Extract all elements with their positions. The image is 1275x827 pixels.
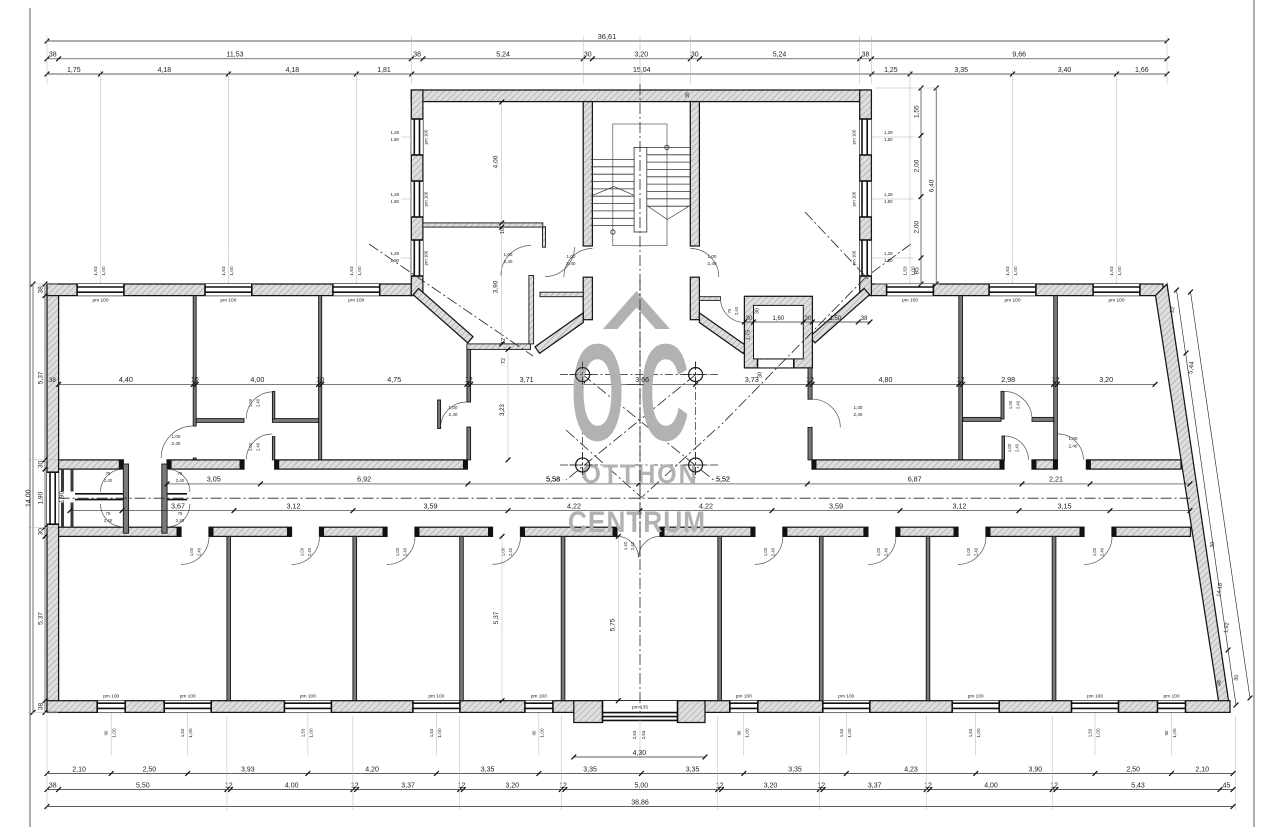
svg-text:1,00: 1,00 (248, 398, 253, 407)
svg-text:3,37: 3,37 (401, 782, 415, 789)
svg-text:3,20: 3,20 (1099, 375, 1113, 384)
svg-text:1,00: 1,00 (501, 547, 506, 556)
svg-text:38: 38 (413, 52, 421, 59)
svg-text:1,00: 1,00 (229, 266, 234, 276)
svg-text:2,53: 2,53 (632, 730, 637, 739)
svg-text:pm 100: pm 100 (348, 298, 364, 304)
svg-text:1,00: 1,00 (854, 405, 863, 410)
svg-text:1,00: 1,00 (395, 547, 400, 556)
svg-text:10: 10 (191, 375, 199, 384)
svg-text:1,80: 1,80 (884, 199, 893, 204)
svg-text:pm 100: pm 100 (93, 298, 109, 304)
svg-text:1,00: 1,00 (357, 266, 362, 276)
svg-text:2,00: 2,00 (914, 159, 921, 172)
svg-text:1,55: 1,55 (914, 105, 921, 118)
svg-text:1,00: 1,00 (1008, 400, 1013, 409)
svg-text:1,28: 1,28 (884, 192, 893, 197)
svg-text:3,71: 3,71 (520, 375, 534, 384)
svg-text:4,00: 4,00 (493, 155, 500, 168)
svg-text:2,40: 2,40 (1015, 443, 1020, 452)
svg-text:1,53: 1,53 (349, 266, 354, 276)
svg-text:1,66: 1,66 (1135, 67, 1149, 74)
svg-text:1,90: 1,90 (38, 491, 45, 504)
svg-text:22: 22 (1170, 306, 1177, 313)
svg-text:2,50: 2,50 (1126, 766, 1140, 773)
svg-text:5,37: 5,37 (38, 371, 45, 384)
svg-text:30: 30 (804, 316, 811, 322)
svg-text:2,40: 2,40 (883, 547, 888, 556)
svg-text:5,75: 5,75 (609, 618, 616, 631)
svg-text:4,40: 4,40 (119, 375, 133, 384)
svg-text:3,35: 3,35 (481, 766, 495, 773)
svg-text:2,40: 2,40 (104, 478, 113, 483)
svg-text:72: 72 (501, 358, 507, 364)
svg-text:75: 75 (106, 511, 111, 516)
svg-text:4,00: 4,00 (984, 782, 998, 789)
svg-text:3,59: 3,59 (829, 501, 843, 510)
svg-text:pm 100: pm 100 (1005, 298, 1021, 304)
svg-text:38: 38 (49, 52, 57, 59)
svg-text:38: 38 (49, 782, 57, 789)
svg-text:1,00: 1,00 (847, 728, 852, 738)
svg-text:2,40: 2,40 (770, 547, 775, 556)
svg-text:3,12: 3,12 (287, 501, 301, 510)
svg-text:1,50: 1,50 (829, 316, 841, 322)
svg-text:1,53: 1,53 (968, 728, 973, 737)
svg-text:1,00: 1,00 (172, 434, 181, 439)
svg-text:pm 100: pm 100 (424, 191, 429, 206)
svg-text:4,18: 4,18 (158, 67, 172, 74)
svg-text:3,35: 3,35 (788, 766, 802, 773)
svg-text:1,00: 1,00 (567, 254, 576, 259)
svg-text:3,37: 3,37 (868, 782, 882, 789)
svg-text:pm 100: pm 100 (220, 298, 236, 304)
svg-text:1,28: 1,28 (884, 130, 893, 135)
svg-text:4,18: 4,18 (286, 67, 300, 74)
svg-text:1,53: 1,53 (180, 728, 185, 737)
svg-text:pm 100: pm 100 (838, 694, 854, 700)
svg-text:1,60: 1,60 (773, 316, 785, 322)
svg-text:12: 12 (957, 375, 965, 384)
svg-text:4,80: 4,80 (879, 375, 893, 384)
svg-text:38: 38 (38, 286, 45, 294)
svg-text:3,20: 3,20 (634, 52, 648, 59)
svg-text:1,00: 1,00 (744, 728, 749, 738)
svg-text:12: 12 (225, 782, 233, 789)
svg-text:3,20: 3,20 (505, 782, 519, 789)
svg-text:2,40: 2,40 (449, 412, 458, 417)
svg-text:30: 30 (1234, 674, 1241, 681)
svg-text:75: 75 (727, 308, 732, 313)
svg-text:1,00: 1,00 (101, 266, 106, 276)
svg-text:12: 12 (351, 782, 359, 789)
svg-text:38: 38 (685, 92, 691, 98)
svg-text:1,28: 1,28 (390, 192, 399, 197)
svg-text:1,90: 1,90 (60, 491, 66, 503)
svg-text:12: 12 (559, 782, 567, 789)
svg-text:3,66: 3,66 (635, 375, 649, 384)
svg-text:12: 12 (924, 782, 932, 789)
svg-text:1,28: 1,28 (884, 251, 893, 256)
svg-text:5,24: 5,24 (773, 52, 787, 59)
svg-text:1,28: 1,28 (390, 130, 399, 135)
svg-text:pm 100: pm 100 (902, 298, 918, 304)
svg-text:4,23: 4,23 (904, 766, 918, 773)
svg-text:3,20: 3,20 (764, 782, 778, 789)
svg-text:4,75: 4,75 (387, 375, 401, 384)
svg-text:2,40: 2,40 (172, 441, 181, 446)
svg-text:75: 75 (178, 471, 183, 476)
svg-text:5,58: 5,58 (546, 475, 560, 484)
svg-text:2,40: 2,40 (176, 518, 185, 523)
svg-text:1,81: 1,81 (377, 67, 391, 74)
svg-text:2,42: 2,42 (630, 541, 635, 550)
svg-text:1,00: 1,00 (504, 252, 513, 257)
svg-text:12: 12 (806, 375, 814, 384)
svg-text:30: 30 (584, 52, 592, 59)
svg-text:1,28: 1,28 (390, 251, 399, 256)
svg-text:1,00: 1,00 (1172, 728, 1177, 738)
svg-text:pm 100: pm 100 (1109, 298, 1125, 304)
svg-text:2,40: 2,40 (708, 261, 717, 266)
svg-text:3,35: 3,35 (954, 67, 968, 74)
svg-text:36,61: 36,61 (598, 32, 617, 41)
svg-text:3,12: 3,12 (953, 501, 967, 510)
svg-text:1,80: 1,80 (390, 137, 399, 142)
svg-text:90: 90 (736, 730, 741, 735)
svg-text:1,53: 1,53 (1088, 728, 1093, 737)
svg-text:pm 100: pm 100 (531, 694, 547, 700)
svg-text:3,15: 3,15 (1058, 501, 1072, 510)
svg-text:3,23: 3,23 (500, 404, 506, 416)
svg-text:pm 100: pm 100 (424, 250, 429, 265)
svg-text:2,40: 2,40 (734, 306, 739, 315)
svg-text:pm 100: pm 100 (968, 694, 984, 700)
svg-text:90: 90 (104, 730, 109, 735)
svg-text:2,10: 2,10 (1195, 766, 1209, 773)
svg-text:1,80: 1,80 (390, 258, 399, 263)
svg-text:1,53: 1,53 (300, 728, 305, 737)
svg-text:90: 90 (1164, 730, 1169, 735)
svg-text:38: 38 (861, 316, 868, 322)
svg-text:pm 100: pm 100 (736, 694, 752, 700)
svg-text:1,53: 1,53 (839, 728, 844, 737)
svg-text:3,35: 3,35 (583, 766, 597, 773)
svg-text:10: 10 (500, 228, 506, 234)
svg-text:1,53: 1,53 (429, 728, 434, 737)
svg-text:4,30: 4,30 (633, 750, 647, 757)
svg-text:12: 12 (458, 782, 466, 789)
svg-text:30: 30 (755, 308, 761, 314)
svg-text:4,20: 4,20 (365, 766, 379, 773)
svg-text:2,00: 2,00 (914, 220, 921, 233)
svg-text:pm 100: pm 100 (428, 694, 444, 700)
svg-text:9,66: 9,66 (1012, 52, 1026, 59)
svg-text:1,00: 1,00 (248, 442, 253, 451)
svg-text:30: 30 (38, 461, 45, 469)
svg-text:30: 30 (746, 316, 753, 322)
svg-text:12: 12 (817, 782, 825, 789)
svg-text:2,40: 2,40 (176, 478, 185, 483)
svg-text:75: 75 (106, 471, 111, 476)
svg-text:30: 30 (1210, 541, 1217, 548)
svg-text:1,00: 1,00 (188, 728, 193, 738)
svg-text:6,40: 6,40 (929, 179, 936, 192)
svg-text:3,90: 3,90 (493, 280, 500, 293)
svg-text:pm 100: pm 100 (424, 129, 429, 144)
svg-text:12: 12 (465, 375, 473, 384)
svg-text:1,00: 1,00 (1117, 266, 1122, 276)
svg-text:1,40: 1,40 (623, 541, 628, 550)
svg-text:2,40: 2,40 (256, 442, 261, 451)
svg-text:OC: OC (571, 316, 704, 470)
svg-text:6,92: 6,92 (357, 475, 371, 484)
svg-text:1,00: 1,00 (449, 405, 458, 410)
svg-text:1,00: 1,00 (976, 728, 981, 738)
svg-text:12: 12 (716, 782, 724, 789)
svg-text:1,00: 1,00 (300, 547, 305, 556)
svg-text:1,00: 1,00 (1069, 436, 1078, 441)
svg-text:38: 38 (49, 378, 56, 384)
svg-text:1,53: 1,53 (903, 266, 908, 276)
svg-text:pm 100: pm 100 (180, 694, 196, 700)
svg-text:38: 38 (1216, 680, 1223, 687)
svg-text:2,40: 2,40 (504, 259, 513, 264)
svg-text:3,67: 3,67 (171, 501, 185, 510)
svg-text:2,40: 2,40 (1016, 400, 1021, 409)
svg-text:CENTRUM: CENTRUM (568, 504, 706, 538)
svg-text:3,59: 3,59 (424, 501, 438, 510)
svg-text:2,40: 2,40 (508, 547, 513, 556)
svg-text:30: 30 (691, 52, 699, 59)
svg-text:1,00: 1,00 (112, 728, 117, 738)
svg-text:2,40: 2,40 (256, 398, 261, 407)
svg-text:12: 12 (1050, 782, 1058, 789)
svg-text:1,25: 1,25 (884, 67, 898, 74)
svg-text:1,00: 1,00 (437, 728, 442, 738)
svg-text:30: 30 (758, 372, 764, 378)
svg-text:1,53: 1,53 (221, 266, 226, 276)
svg-text:1,00: 1,00 (876, 547, 881, 556)
svg-text:5,50: 5,50 (136, 782, 150, 789)
svg-text:4,00: 4,00 (285, 782, 299, 789)
svg-text:2,40: 2,40 (307, 547, 312, 556)
svg-text:14,00: 14,00 (26, 489, 33, 507)
svg-text:pm 100: pm 100 (852, 129, 857, 144)
svg-text:15,04: 15,04 (633, 67, 651, 74)
svg-text:38,86: 38,86 (631, 799, 649, 806)
svg-text:2,53: 2,53 (641, 730, 646, 739)
svg-text:1,75: 1,75 (746, 330, 752, 341)
svg-text:38: 38 (862, 52, 870, 59)
svg-text:5,43: 5,43 (1131, 782, 1145, 789)
svg-text:3,90: 3,90 (1028, 766, 1042, 773)
svg-text:1,80: 1,80 (884, 137, 893, 142)
svg-text:1,00: 1,00 (189, 547, 194, 556)
svg-text:1,00: 1,00 (539, 728, 544, 738)
svg-text:1,00: 1,00 (966, 547, 971, 556)
svg-text:1,00: 1,00 (308, 728, 313, 738)
svg-text:38: 38 (38, 703, 45, 711)
svg-text:6,87: 6,87 (908, 475, 922, 484)
svg-text:1,00: 1,00 (1096, 728, 1101, 738)
svg-text:2,40: 2,40 (403, 547, 408, 556)
svg-text:12: 12 (501, 338, 507, 344)
svg-text:12: 12 (1052, 375, 1060, 384)
svg-text:2,40: 2,40 (1069, 444, 1078, 449)
svg-text:1,00: 1,00 (1013, 266, 1018, 276)
svg-text:1,80: 1,80 (390, 199, 399, 204)
svg-text:1,00: 1,00 (1007, 443, 1012, 452)
svg-text:3,35: 3,35 (686, 766, 700, 773)
svg-text:85: 85 (914, 267, 921, 275)
svg-text:3,40: 3,40 (1058, 67, 1072, 74)
svg-text:5,37: 5,37 (493, 611, 500, 624)
svg-text:90: 90 (531, 730, 536, 735)
svg-text:pm 100: pm 100 (1164, 694, 1180, 700)
svg-text:pm 100: pm 100 (852, 250, 857, 265)
svg-text:1,00: 1,00 (763, 547, 768, 556)
svg-text:2,40: 2,40 (197, 547, 202, 556)
svg-text:11,53: 11,53 (227, 52, 244, 59)
svg-text:10: 10 (316, 375, 324, 384)
svg-text:pm 100: pm 100 (300, 694, 316, 700)
svg-text:5,00: 5,00 (634, 782, 648, 789)
svg-text:75: 75 (178, 511, 183, 516)
svg-text:2,10: 2,10 (72, 766, 86, 773)
svg-text:2,40: 2,40 (854, 412, 863, 417)
svg-text:2,40: 2,40 (1100, 547, 1105, 556)
svg-text:2,40: 2,40 (104, 518, 113, 523)
svg-text:2,40: 2,40 (974, 547, 979, 556)
svg-text:1,00: 1,00 (708, 254, 717, 259)
svg-text:1,75: 1,75 (67, 67, 81, 74)
svg-text:2,50: 2,50 (143, 766, 157, 773)
svg-text:45: 45 (1223, 782, 1231, 789)
svg-text:2,98: 2,98 (1001, 375, 1015, 384)
svg-text:pm 100: pm 100 (852, 191, 857, 206)
svg-text:5,52: 5,52 (716, 475, 730, 484)
svg-text:1,53: 1,53 (1005, 266, 1010, 276)
svg-text:30: 30 (38, 528, 45, 536)
svg-text:5,24: 5,24 (496, 52, 510, 59)
svg-text:1,53: 1,53 (1109, 266, 1114, 276)
svg-text:5,37: 5,37 (38, 612, 45, 625)
svg-text:3,93: 3,93 (241, 766, 255, 773)
svg-text:4,00: 4,00 (250, 375, 264, 384)
svg-text:2,21: 2,21 (1049, 475, 1063, 484)
svg-text:pm 100: pm 100 (103, 694, 119, 700)
svg-text:pm 100: pm 100 (1087, 694, 1103, 700)
svg-text:1,53: 1,53 (93, 266, 98, 276)
svg-text:1,00: 1,00 (1092, 547, 1097, 556)
svg-text:3,05: 3,05 (207, 475, 221, 484)
